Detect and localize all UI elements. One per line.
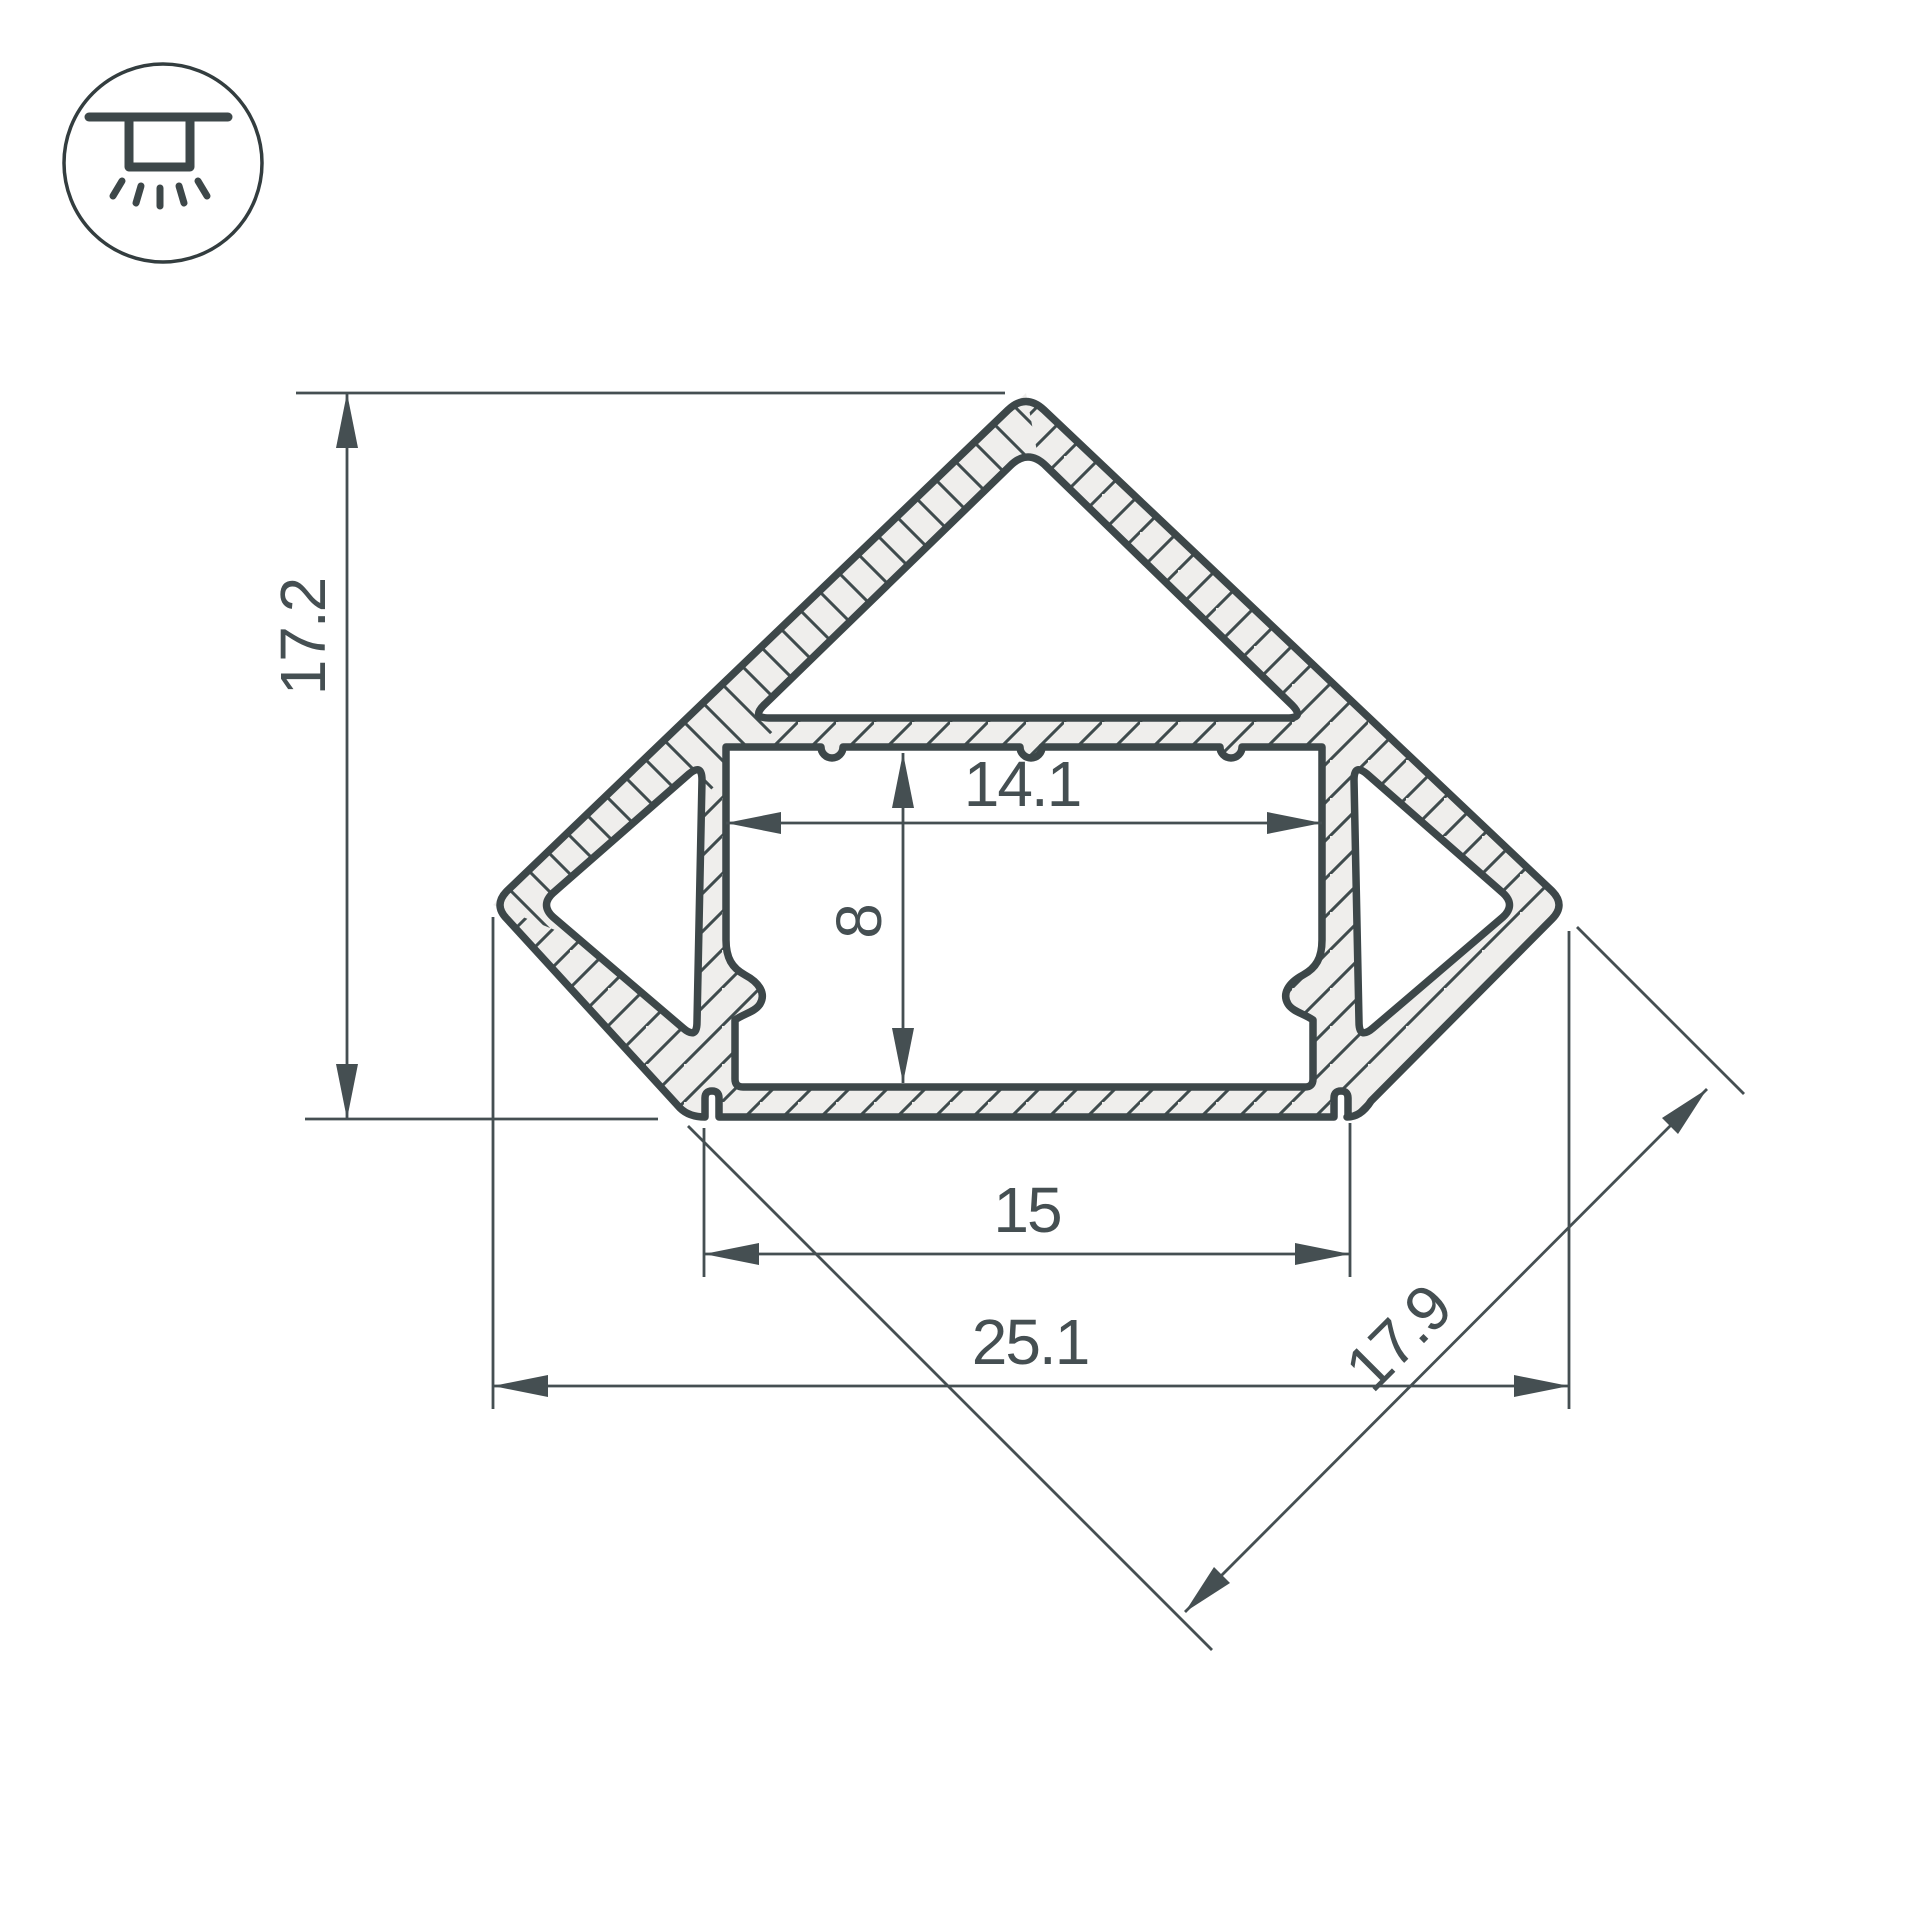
- dim-base-width-label: 15: [993, 1174, 1060, 1246]
- drawing-page: 17.2 14.1 8 15 25.1 17.9: [0, 0, 1920, 1920]
- profile-cross-section-drawing: 17.2 14.1 8 15 25.1 17.9: [0, 0, 1920, 1920]
- dim-overall-width-label: 25.1: [972, 1306, 1089, 1378]
- dim-groove-width-label: 14.1: [964, 748, 1081, 820]
- recessed-ceiling-light-icon: [64, 64, 262, 262]
- dim-overall-height-label: 17.2: [267, 579, 339, 696]
- dim-groove-depth-label: 8: [823, 905, 895, 939]
